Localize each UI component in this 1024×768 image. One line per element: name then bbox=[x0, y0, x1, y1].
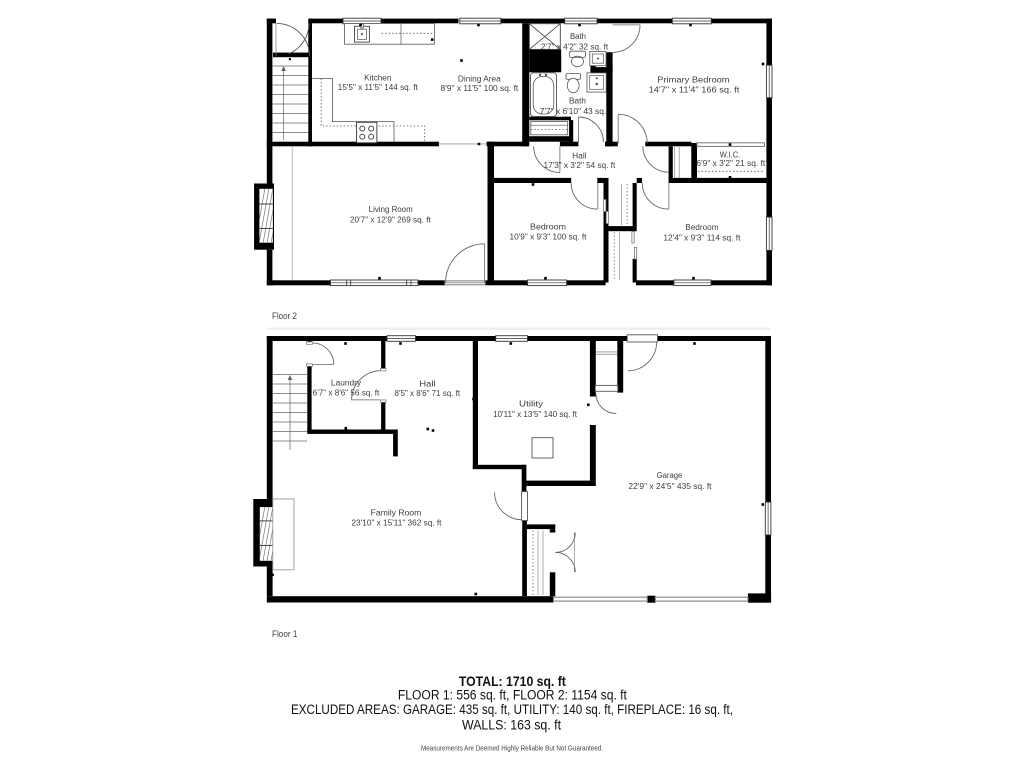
svg-text:22'9" x 24'5" 435 sq. ft: 22'9" x 24'5" 435 sq. ft bbox=[628, 482, 712, 491]
svg-text:Dining Area: Dining Area bbox=[458, 74, 502, 83]
svg-text:Measurements Are Deemed Highly: Measurements Are Deemed Highly Reliable … bbox=[421, 743, 603, 752]
svg-text:FLOOR 1: 556 sq. ft, FLOOR 2:: FLOOR 1: 556 sq. ft, FLOOR 2: 1154 sq. f… bbox=[398, 687, 627, 702]
svg-text:Bath: Bath bbox=[570, 32, 586, 41]
svg-text:Hall: Hall bbox=[572, 152, 587, 161]
svg-text:6'9" x 3'2" 21 sq. ft: 6'9" x 3'2" 21 sq. ft bbox=[696, 159, 766, 168]
svg-text:Living Room: Living Room bbox=[369, 205, 413, 214]
svg-text:Kitchen: Kitchen bbox=[364, 73, 391, 82]
svg-text:23'10" x 15'11" 362 sq. ft: 23'10" x 15'11" 362 sq. ft bbox=[352, 518, 443, 527]
svg-text:Utility: Utility bbox=[519, 399, 543, 408]
svg-text:Primary Bedroom: Primary Bedroom bbox=[657, 76, 729, 85]
svg-text:Family Room: Family Room bbox=[371, 508, 422, 517]
svg-text:6'7" x 8'6" 56 sq. ft: 6'7" x 8'6" 56 sq. ft bbox=[313, 389, 380, 398]
svg-text:7'7" x 6'10" 43 sq.: 7'7" x 6'10" 43 sq. bbox=[540, 107, 606, 116]
svg-text:15'5" x 11'5" 144 sq. ft: 15'5" x 11'5" 144 sq. ft bbox=[338, 83, 419, 92]
svg-text:Laundry: Laundry bbox=[331, 379, 361, 388]
svg-text:10'11" x 13'5" 140 sq. ft: 10'11" x 13'5" 140 sq. ft bbox=[493, 410, 578, 419]
svg-text:Garage: Garage bbox=[657, 471, 683, 480]
svg-text:Bath: Bath bbox=[569, 97, 586, 106]
svg-text:2'7" x 4'2" 32 sq. ft: 2'7" x 4'2" 32 sq. ft bbox=[541, 42, 609, 51]
svg-text:WALLS: 163 sq. ft: WALLS: 163 sq. ft bbox=[462, 717, 561, 732]
svg-text:Hall: Hall bbox=[419, 379, 435, 388]
svg-text:8'5" x 8'6" 71 sq. ft: 8'5" x 8'6" 71 sq. ft bbox=[395, 389, 461, 398]
svg-text:Bedroom: Bedroom bbox=[685, 223, 718, 232]
svg-text:W.I.C.: W.I.C. bbox=[720, 150, 741, 159]
svg-text:10'9" x 9'3" 100 sq. ft: 10'9" x 9'3" 100 sq. ft bbox=[510, 233, 588, 242]
svg-text:8'9" x 11'5" 100 sq. ft: 8'9" x 11'5" 100 sq. ft bbox=[441, 84, 520, 93]
svg-text:17'3" x 3'2" 54 sq. ft: 17'3" x 3'2" 54 sq. ft bbox=[544, 161, 617, 170]
svg-text:EXCLUDED AREAS: GARAGE: 435 sq: EXCLUDED AREAS: GARAGE: 435 sq. ft, UTIL… bbox=[291, 702, 733, 717]
svg-text:Floor 1: Floor 1 bbox=[272, 629, 297, 639]
svg-text:14'7" x 11'4" 166 sq. ft: 14'7" x 11'4" 166 sq. ft bbox=[649, 85, 741, 94]
svg-text:Bedroom: Bedroom bbox=[530, 222, 566, 231]
svg-text:12'4" x 9'3" 114 sq. ft: 12'4" x 9'3" 114 sq. ft bbox=[663, 233, 741, 242]
svg-text:20'7" x 12'9" 269 sq. ft: 20'7" x 12'9" 269 sq. ft bbox=[350, 215, 432, 224]
svg-text:Floor 2: Floor 2 bbox=[272, 311, 297, 321]
